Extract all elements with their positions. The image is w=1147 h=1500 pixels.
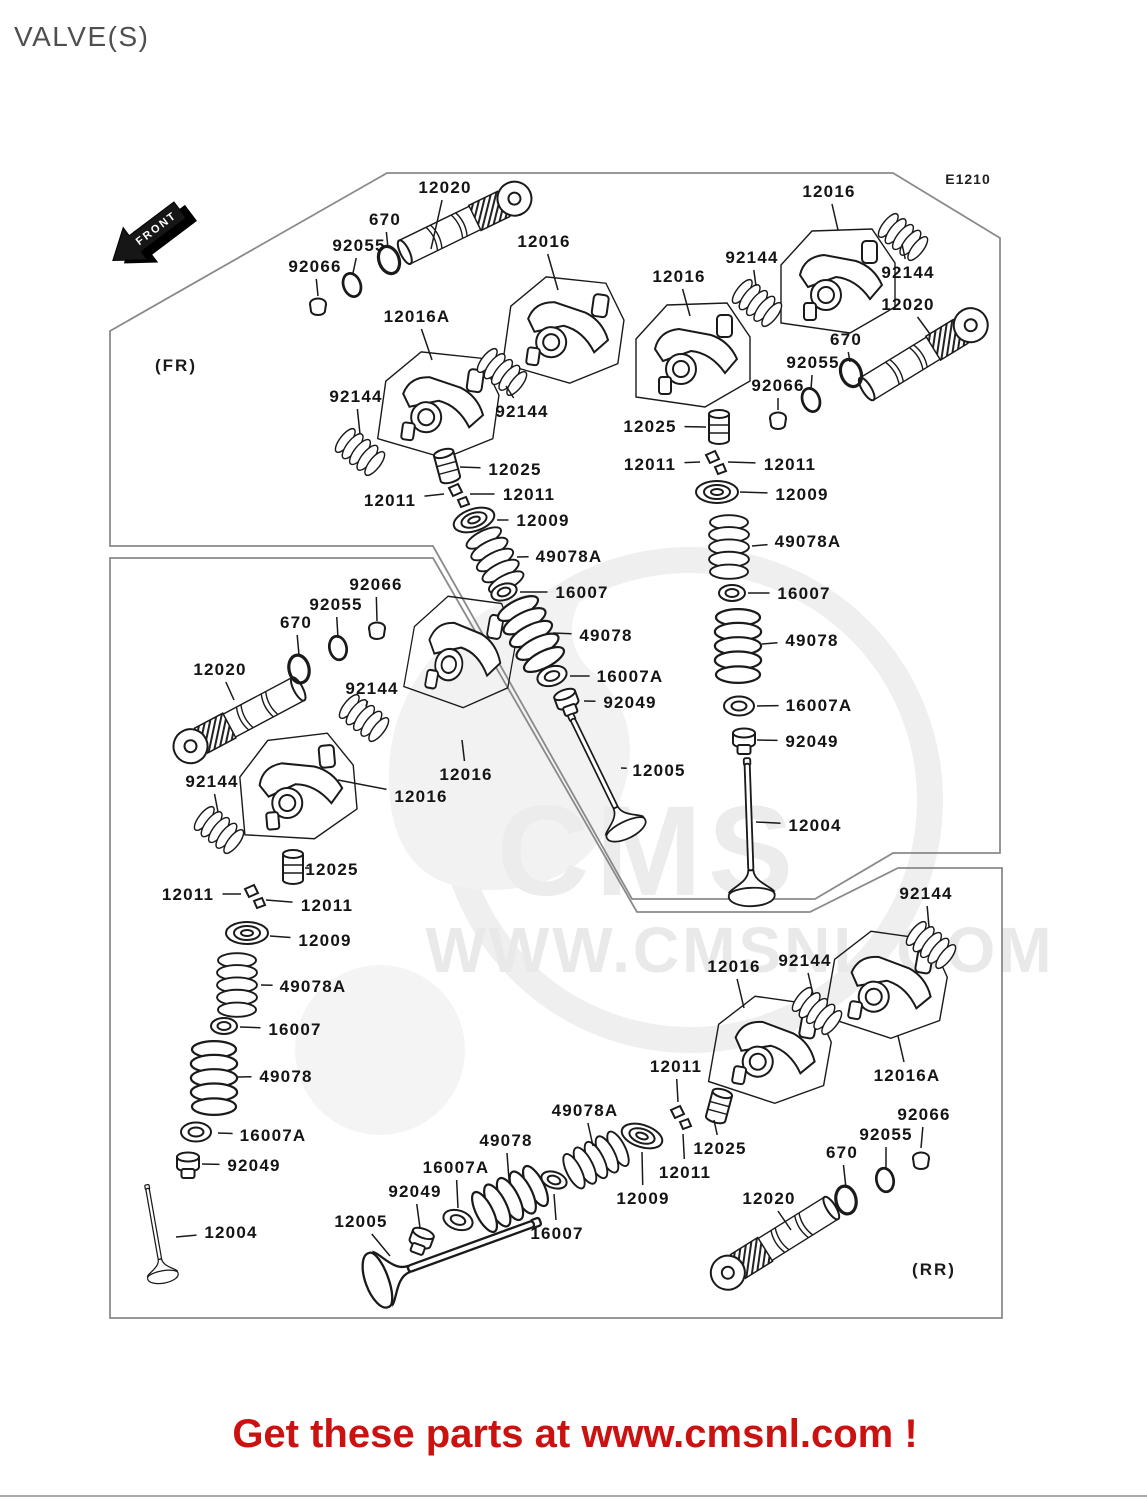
part-label-12011: 12011 [364,491,416,510]
part-label-49078: 49078 [479,1131,532,1150]
part-label-670: 670 [280,613,312,632]
part-label-92144: 92144 [725,248,778,267]
parts-diagram-canvas: CMS WWW.CMSNL.COM [0,0,1147,1500]
part-retainer-12009-left [226,922,268,944]
part-cap-92066-frright [770,413,786,430]
part-label-12020: 12020 [193,660,246,679]
part-label-92144: 92144 [881,263,934,282]
part-label-16007A: 16007A [240,1126,307,1145]
part-label-92066: 92066 [897,1105,950,1124]
part-label-12025: 12025 [305,860,358,879]
leader-line-16007A [457,1180,458,1208]
part-label-12005: 12005 [334,1212,387,1231]
part-label-92066: 92066 [751,376,804,395]
leader-line-92066 [921,1127,923,1148]
leader-line-12020 [778,1211,791,1230]
part-label-92144: 92144 [495,402,548,421]
front-arrow-icon: FRONT [101,190,203,284]
part-tappet-12025-frright [709,410,729,444]
view-label-fr: (FR) [155,356,197,375]
part-label-12004: 12004 [788,816,841,835]
leader-line-16007 [240,1027,261,1028]
part-guide-92049-bottom [406,1225,435,1256]
part-label-12011: 12011 [624,455,676,474]
leader-line-49078 [553,633,572,634]
part-label-12016: 12016 [517,232,570,251]
part-oring-92055-rr [874,1167,896,1194]
part-spring-92144-4 [875,210,932,264]
part-shaft-12020-fr-right [854,302,994,406]
part-seat-16007a-bottom [441,1206,475,1233]
part-label-12011: 12011 [503,485,555,504]
part-label-16007A: 16007A [423,1158,490,1177]
part-label-12016: 12016 [394,787,447,806]
part-rocker-12016-fr-right2 [781,229,895,333]
part-tappet-12025-bottom [705,1087,733,1125]
leader-line-92066 [316,279,318,296]
part-label-92049: 92049 [388,1182,441,1201]
leader-line-12016 [338,780,387,789]
leader-line-92055 [811,375,812,389]
page-title: VALVE(S) [14,21,149,52]
part-label-92066: 92066 [288,257,341,276]
part-label-16007: 16007 [268,1020,321,1039]
part-label-92066: 92066 [349,575,402,594]
leader-line-12011 [685,462,701,463]
part-label-12016: 12016 [707,957,760,976]
part-label-12009: 12009 [516,511,569,530]
leader-line-92144 [215,794,218,812]
leader-line-16007A [218,1133,233,1134]
leader-line-12004 [176,1235,197,1237]
part-cap-92066-rr [913,1153,929,1170]
part-label-12020: 12020 [418,178,471,197]
part-label-49078A: 49078A [552,1101,619,1120]
part-label-12004: 12004 [204,1223,257,1242]
part-spring-49078a-frmid [463,523,527,598]
leader-line-92144 [754,270,756,286]
leader-line-49078 [762,643,778,644]
part-label-12016A: 12016A [874,1066,941,1085]
part-label-92049: 92049 [227,1156,280,1175]
part-label-12009: 12009 [298,931,351,950]
part-label-12011: 12011 [659,1163,711,1182]
part-keeper-12011-left [245,885,265,908]
part-label-12009: 12009 [616,1189,669,1208]
part-rocker-12016-left [237,731,360,845]
leader-line-12016A [898,1036,904,1062]
part-label-16007A: 16007A [786,696,853,715]
leader-line-12011 [266,900,293,902]
part-washer-16007-frright [719,585,745,601]
leader-line-12016A [421,329,432,360]
part-label-92049: 92049 [785,732,838,751]
part-label-92055: 92055 [309,595,362,614]
part-label-16007: 16007 [530,1224,583,1243]
part-label-670: 670 [369,210,401,229]
part-label-12005: 12005 [632,761,685,780]
part-label-92144: 92144 [185,772,238,791]
part-oring-92055-left [327,635,349,662]
footer-promo: Get these parts at www.cmsnl.com ! [232,1412,917,1456]
part-label-12011: 12011 [301,896,353,915]
part-label-670: 670 [830,330,862,349]
leader-line-12020 [918,317,930,334]
leader-line-92066 [376,597,377,621]
part-guide-92049-frright [733,729,755,755]
part-spring-49078a-left [217,953,257,1017]
part-retainer-12009-frright [696,481,738,503]
part-label-12016: 12016 [439,765,492,784]
leader-line-49078A [752,545,768,546]
part-label-12025: 12025 [693,1139,746,1158]
diagram-code: E1210 [945,171,990,187]
part-spring-92144-5 [336,691,393,745]
part-spring-92144-3 [729,276,786,330]
part-label-12025: 12025 [488,460,541,479]
part-label-12016A: 12016A [384,307,451,326]
leader-line-12009 [740,492,768,493]
leader-line-92055 [353,258,356,273]
part-spring-49078-left [191,1041,237,1115]
part-label-12016: 12016 [802,182,855,201]
part-spring-92144-2 [474,345,531,399]
part-seat-16007a-left [181,1123,211,1142]
part-oring-92055-frleft [340,271,364,299]
leader-line-12011 [728,462,756,463]
part-tappet-12025-left [283,850,303,884]
leader-line-12016 [832,204,838,230]
leader-line-92144 [357,409,360,434]
leader-line-12009 [642,1152,643,1185]
watermark: CMS WWW.CMSNL.COM [295,560,1055,1135]
leader-line-12011 [683,1134,684,1159]
leader-line-12016 [683,289,690,316]
part-label-92144: 92144 [345,679,398,698]
part-keeper-12011-frright [706,451,726,474]
part-rocker-12016-fr-mid [501,271,628,390]
part-label-92055: 92055 [859,1125,912,1144]
leader-line-12011 [677,1079,678,1102]
part-label-12025: 12025 [623,417,676,436]
view-label-rr: (RR) [912,1260,956,1279]
part-label-12020: 12020 [881,295,934,314]
part-label-12011: 12011 [162,885,214,904]
leader-line-12009 [270,936,291,937]
part-spring-49078-frright [715,609,761,683]
part-label-49078A: 49078A [280,977,347,996]
part-cap-92066-frleft [310,299,326,316]
part-guide-92049-left [177,1153,199,1179]
part-rocker-12016-fr-right1 [636,303,750,407]
leader-line-12025 [460,467,481,468]
part-keeper-12011-frmid [449,484,469,507]
part-valve-12004-left [132,1182,180,1286]
part-label-12016: 12016 [652,267,705,286]
part-label-16007A: 16007A [597,667,664,686]
part-spring-49078a-frright [709,515,749,579]
leader-line-12011 [425,494,445,496]
part-label-16007: 16007 [777,584,830,603]
part-label-49078: 49078 [259,1067,312,1086]
part-spring-49078a-bottom [559,1128,634,1192]
part-label-12020: 12020 [742,1189,795,1208]
part-label-16007: 16007 [555,583,608,602]
leader-line-12020 [226,682,234,700]
part-label-670: 670 [826,1143,858,1162]
leader-line-49078 [507,1153,509,1180]
part-label-92144: 92144 [778,951,831,970]
part-seat-16007a-frright [724,697,754,716]
part-label-12011: 12011 [650,1057,702,1076]
part-label-92144: 92144 [329,387,382,406]
part-label-12009: 12009 [775,485,828,504]
part-cap-92066-left [369,623,385,640]
part-label-92055: 92055 [786,353,839,372]
part-label-49078: 49078 [785,631,838,650]
part-label-92049: 92049 [603,693,656,712]
part-shaft-12020-left [168,672,311,769]
leader-line-16007 [554,1194,556,1220]
part-label-92144: 92144 [899,884,952,903]
leader-line-12016 [548,254,558,290]
part-label-12011: 12011 [764,455,816,474]
leader-line-670 [297,635,299,655]
part-washer-16007-left [211,1018,237,1034]
part-label-92055: 92055 [332,236,385,255]
leader-line-92049 [417,1204,420,1228]
part-spring-92144-6 [191,803,248,857]
part-label-49078A: 49078A [775,532,842,551]
part-label-49078A: 49078A [536,547,603,566]
part-keeper-12011-bottom [671,1106,691,1129]
part-label-49078: 49078 [579,626,632,645]
